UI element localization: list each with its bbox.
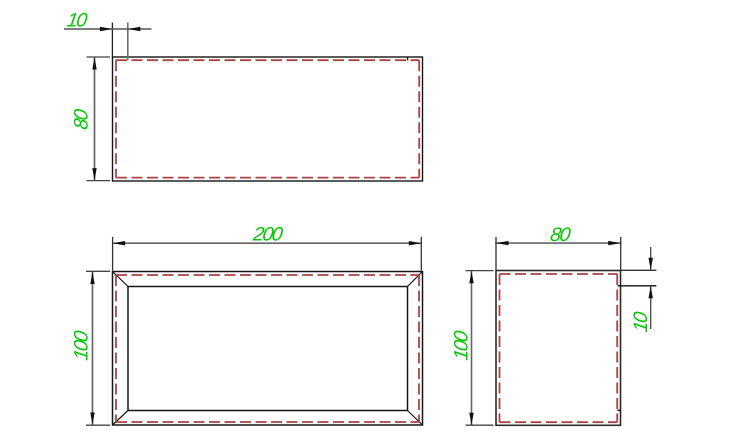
svg-text:10: 10 — [66, 10, 89, 32]
svg-text:100: 100 — [450, 329, 472, 361]
svg-text:200: 200 — [251, 223, 284, 245]
svg-text:100: 100 — [70, 329, 92, 361]
svg-text:10: 10 — [630, 310, 652, 333]
svg-text:80: 80 — [70, 108, 92, 131]
